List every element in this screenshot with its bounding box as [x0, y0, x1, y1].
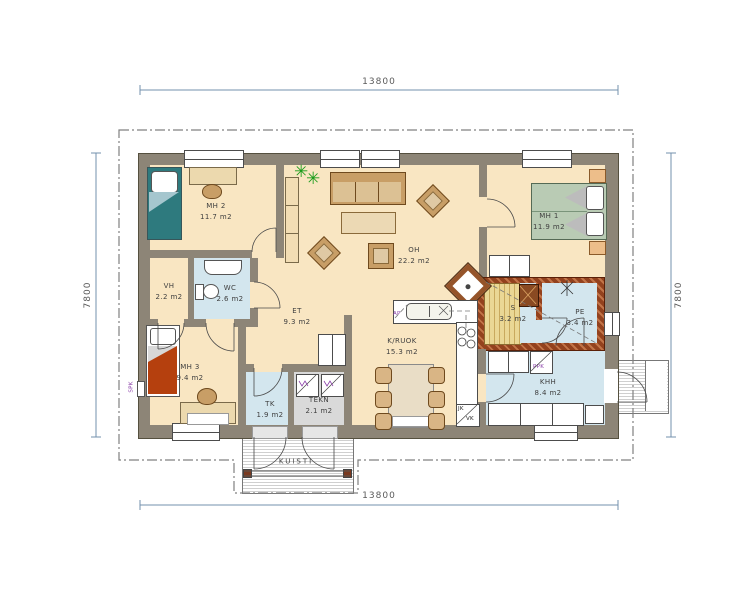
bed-mh3-pillow: [150, 328, 176, 345]
room-area-tk: 1.9 m2: [256, 410, 283, 421]
room-label-sauna: S 3.2 m2: [499, 303, 526, 325]
khh-counter-1: [488, 403, 521, 426]
porch-post-right: [343, 469, 352, 478]
wall-tk-top-stub: [246, 364, 254, 372]
hall-cabinet: [318, 334, 346, 366]
room-area-mh1: 11.9 m2: [533, 222, 565, 233]
bed-mh2-blanket: [149, 192, 179, 212]
bed-mh1-blanket-top: [565, 186, 587, 209]
window-mh1: [522, 150, 572, 168]
electrical-panel-label: SPK: [129, 381, 135, 392]
room-area-mh2: 11.7 m2: [200, 212, 232, 223]
window-pe: [604, 312, 620, 336]
room-label-mh2: MH 2 11.7 m2: [200, 201, 232, 223]
wall-row-bottom-b: [184, 319, 206, 327]
room-name-kruok: K/RUOK: [386, 336, 418, 347]
room-area-khh: 8.4 m2: [534, 388, 561, 399]
bed-mh1-pillow-top: [586, 186, 604, 210]
room-area-kruok: 15.3 m2: [386, 347, 418, 358]
chair-mh3: [197, 388, 217, 405]
desk-mh2: [189, 167, 237, 185]
khh-counter-2: [520, 403, 553, 426]
room-area-oh: 22.2 m2: [398, 256, 430, 267]
nightstand-top: [589, 169, 606, 183]
window-oh-1: [320, 150, 360, 168]
bed-mh2: [147, 167, 182, 240]
dimension-top: 13800: [362, 77, 396, 87]
fridge-label: JK: [458, 406, 464, 412]
room-label-mh1: MH 1 11.9 m2: [533, 211, 565, 233]
room-area-pe: 3.4 m2: [566, 318, 593, 329]
dining-chair-2: [375, 391, 392, 408]
sofa-cushions: [333, 182, 401, 202]
room-label-khh: KHH 8.4 m2: [534, 377, 561, 399]
desk-mh3-panel: [187, 413, 229, 425]
room-label-kruok: K/RUOK 15.3 m2: [386, 336, 418, 358]
electrical-panel: [137, 381, 145, 397]
wall-mh2-right: [276, 165, 284, 258]
room-name-pe: PE: [566, 307, 593, 318]
wall-oh-mh1-a: [479, 165, 487, 197]
room-area-mh3: 9.4 m2: [176, 373, 203, 384]
sofa: [330, 172, 406, 205]
kitchen-sink: [406, 303, 452, 320]
dimension-right: 7800: [674, 282, 684, 309]
room-name-kuisti: KUISTI: [279, 457, 313, 468]
room-label-wc: WC 2.6 m2: [216, 283, 243, 305]
wall-wc-right-b: [250, 308, 258, 319]
dining-chair-6: [428, 413, 445, 430]
dishwasher-label: AP: [393, 311, 401, 317]
nightstand-bottom: [589, 241, 606, 255]
room-label-mh3: MH 3 9.4 m2: [176, 362, 203, 384]
window-oh-2: [361, 150, 400, 168]
room-name-mh2: MH 2: [200, 201, 232, 212]
wall-tekn-right: [344, 315, 352, 425]
wall-vh-wc-divider: [188, 258, 194, 319]
shelf-oh: [285, 177, 299, 263]
wall-k-khh-a: [478, 349, 486, 374]
bed-mh2-pillow: [151, 171, 178, 193]
room-label-pe: PE 3.4 m2: [566, 307, 593, 329]
room-name-khh: KHH: [534, 377, 561, 388]
porch-post-left: [243, 469, 252, 478]
room-label-kuisti: KUISTI: [279, 457, 313, 468]
room-name-vh: VH: [155, 281, 182, 292]
armchair-square-cushion: [373, 248, 389, 264]
porch-door-threshold-tk: [252, 426, 288, 439]
kitchen-sink-divider: [429, 306, 430, 317]
room-label-et: ET 9.3 m2: [283, 306, 310, 328]
washing-machine: [530, 351, 553, 374]
window-mh3: [172, 423, 220, 441]
room-label-tk: TK 1.9 m2: [256, 399, 283, 421]
window-mh2: [184, 150, 244, 168]
porch-door-threshold-tekn: [302, 426, 338, 439]
dining-chair-4: [428, 367, 445, 384]
room-area-et: 9.3 m2: [283, 317, 310, 328]
room-area-sauna: 3.2 m2: [499, 314, 526, 325]
room-name-tk: TK: [256, 399, 283, 410]
khh-counter-4: [585, 405, 604, 424]
khh-counter-3: [552, 403, 584, 426]
armchair-square: [368, 243, 394, 269]
khh-exterior-door-opening: [604, 369, 618, 403]
room-name-wc: WC: [216, 283, 243, 294]
khh-cabinet-2: [508, 351, 529, 373]
wall-wc-right-a: [250, 258, 258, 282]
room-name-et: ET: [283, 306, 310, 317]
room-name-mh3: MH 3: [176, 362, 203, 373]
dining-chair-1: [375, 367, 392, 384]
dining-chair-3: [375, 413, 392, 430]
chair-mh2: [202, 184, 222, 199]
dining-bench: [392, 416, 430, 427]
room-name-sauna: S: [499, 303, 526, 314]
plant-icon-2: ✳: [306, 171, 320, 188]
coffee-table: [341, 212, 396, 234]
freezer-label: VK: [466, 416, 474, 422]
dimension-left: 7800: [83, 282, 93, 309]
wall-mh2-bottom: [150, 250, 252, 258]
room-label-vh: VH 2.2 m2: [155, 281, 182, 303]
wall-mh3-right: [238, 319, 246, 425]
sauna-door-gap: [536, 320, 542, 343]
room-area-wc: 2.6 m2: [216, 294, 243, 305]
tekn-unit-2: [321, 374, 344, 397]
washing-machine-label: PPK: [533, 364, 544, 370]
dimension-bottom: 13800: [362, 491, 396, 501]
wardrobe-mh1-a: [489, 255, 510, 277]
room-name-mh1: MH 1: [533, 211, 565, 222]
wall-tk-tekn-divider: [288, 372, 294, 425]
wardrobe-mh1-b: [509, 255, 530, 277]
room-area-tekn: 2.1 m2: [305, 406, 332, 417]
kitchen-counter-right: [456, 322, 478, 406]
room-label-tekn: TEKN 2.1 m2: [305, 395, 332, 417]
floor-plan: ✳ ✳: [0, 0, 755, 600]
wall-oh-mh1-b: [479, 227, 487, 277]
room-name-tekn: TEKN: [305, 395, 332, 406]
bed-mh1-pillow-bottom: [586, 212, 604, 236]
bed-mh3: [146, 325, 180, 397]
room-label-oh: OH 22.2 m2: [398, 245, 430, 267]
khh-cabinet-1: [488, 351, 509, 373]
room-name-oh: OH: [398, 245, 430, 256]
dining-chair-5: [428, 391, 445, 408]
bed-mh1-blanket-bottom: [565, 213, 587, 236]
tekn-unit-1: [296, 374, 319, 397]
wc-sink: [204, 260, 242, 275]
room-area-vh: 2.2 m2: [155, 292, 182, 303]
side-deck-step: [645, 361, 667, 411]
